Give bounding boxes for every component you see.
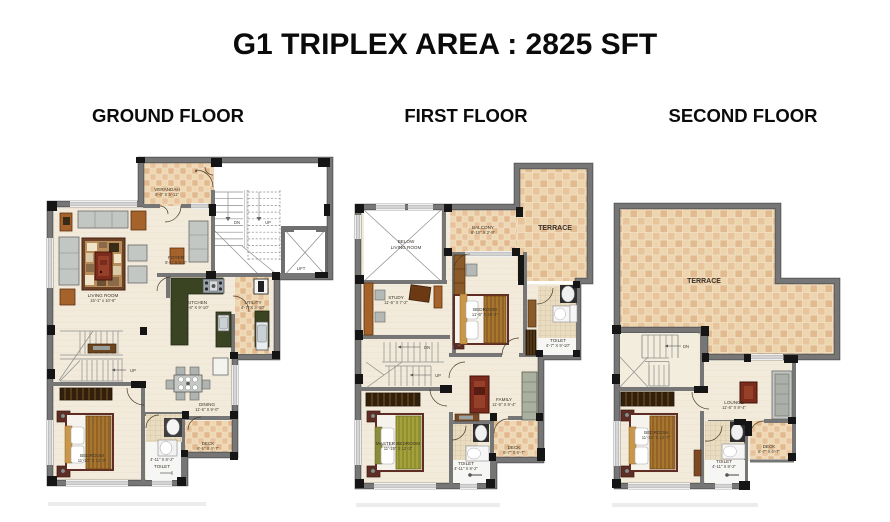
svg-text:FIRST FLOOR: FIRST FLOOR [404,105,527,126]
svg-text:8'-6" X 9'-10": 8'-6" X 9'-10" [185,305,210,310]
svg-text:8'-0" X 5'-11": 8'-0" X 5'-11" [155,192,179,197]
svg-text:TOILET: TOILET [154,464,170,469]
svg-text:DN: DN [234,220,240,225]
svg-text:UP: UP [130,368,136,373]
svg-text:DN: DN [424,345,430,350]
svg-text:G1 TRIPLEX AREA : 2825 SFT: G1 TRIPLEX AREA : 2825 SFT [233,28,658,61]
svg-text:11'-10" X 12'-7": 11'-10" X 12'-7" [642,435,671,440]
svg-text:LIVING ROOM: LIVING ROOM [391,245,422,250]
svg-text:11'-6" X 9'-4": 11'-6" X 9'-4" [492,402,516,407]
svg-text:6'-7" X 6'-7": 6'-7" X 6'-7" [758,449,780,454]
svg-text:4'-7" X 9'-10": 4'-7" X 9'-10" [546,343,571,348]
svg-text:UP: UP [435,373,441,378]
svg-text:11'-10" X 12'-3": 11'-10" X 12'-3" [78,458,107,463]
svg-text:4'-11" X 8'-2": 4'-11" X 8'-2" [712,464,736,469]
svg-text:8'-10" X 2'-9": 8'-10" X 2'-9" [471,230,496,235]
svg-text:11'-6" X 9'-0": 11'-6" X 9'-0" [195,407,219,412]
svg-text:15'-1" x 10'-6": 15'-1" x 10'-6" [90,298,116,303]
svg-text:11'-6" X 9'-4": 11'-6" X 9'-4" [722,405,746,410]
svg-text:4'-7" X 3'-10": 4'-7" X 3'-10" [241,305,266,310]
svg-text:SECOND FLOOR: SECOND FLOOR [668,105,817,126]
svg-text:UP: UP [265,220,271,225]
svg-text:5'-1" X 9'-6": 5'-1" X 9'-6" [165,260,187,265]
svg-text:4'-11" X 8'-2": 4'-11" X 8'-2" [454,466,478,471]
svg-text:TERRACE: TERRACE [687,278,721,285]
svg-text:11'-10" X 12'-3": 11'-10" X 12'-3" [384,446,413,451]
svg-text:4'-11" X 8'-2": 4'-11" X 8'-2" [150,457,174,462]
svg-text:DN: DN [683,344,689,349]
svg-text:11'-6" X 7'-2": 11'-6" X 7'-2" [384,300,408,305]
svg-text:LIFT: LIFT [297,266,306,271]
svg-text:11'-6" X 10'-4": 11'-6" X 10'-4" [472,312,499,317]
svg-text:GROUND FLOOR: GROUND FLOOR [92,105,244,126]
svg-text:TERRACE: TERRACE [538,225,572,232]
svg-text:6'-7" X 6'-7": 6'-7" X 6'-7" [503,450,525,455]
svg-text:BELOW: BELOW [398,239,415,244]
svg-text:6'-5" X 4'-7": 6'-5" X 4'-7" [197,446,219,451]
